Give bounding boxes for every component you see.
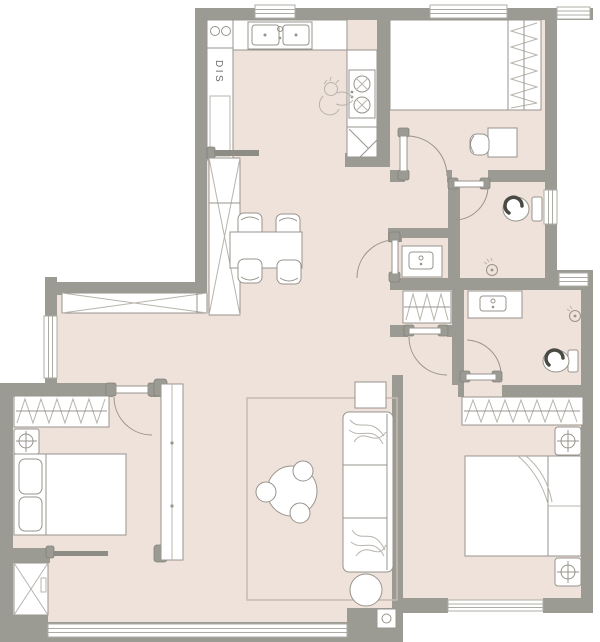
pouf	[350, 574, 382, 606]
apartment-floor-plan: DIS	[0, 0, 600, 642]
dining-chair	[238, 259, 262, 283]
dishwasher-label: DIS	[213, 60, 224, 84]
corner-unit	[347, 127, 377, 157]
stool	[290, 503, 310, 523]
nightstand	[14, 429, 39, 454]
master-bedroom-window	[448, 600, 543, 611]
storage-box	[14, 563, 48, 615]
nightstand	[555, 427, 581, 455]
master-bed	[465, 456, 581, 556]
floor-plan-canvas: DIS	[0, 0, 600, 642]
pillow	[19, 459, 42, 494]
stool	[256, 482, 276, 502]
floor-outlet	[377, 609, 396, 628]
ensuite-window	[559, 273, 588, 286]
wardrobe	[14, 396, 109, 427]
ensuite-vanity	[468, 291, 522, 318]
cooktop	[349, 70, 375, 118]
wardrobe	[508, 20, 541, 110]
top-right-corner-window	[557, 7, 590, 19]
kitchen-window	[255, 5, 295, 18]
bed	[14, 454, 126, 535]
desk-chair	[470, 134, 489, 155]
side-table	[355, 382, 386, 408]
bathroom-window	[544, 190, 557, 224]
master-wardrobe	[462, 397, 583, 425]
living-room-panorama-window	[48, 624, 347, 637]
left-wall-window	[44, 316, 57, 378]
bedroom3-window	[430, 5, 507, 18]
stool	[293, 461, 313, 481]
dining-chair	[277, 260, 301, 284]
pillow	[19, 497, 42, 531]
kitchen-sink	[248, 22, 312, 49]
nightstand	[555, 558, 581, 586]
desk	[488, 128, 517, 157]
vanity-basin	[402, 246, 442, 277]
dishwasher-cabinet: DIS	[207, 20, 233, 160]
ensuite-toilet	[543, 350, 578, 372]
sofa	[343, 412, 393, 572]
long-sideboard-cabinet	[62, 293, 207, 313]
closet-nook-wardrobe	[403, 291, 451, 323]
platform-bed	[390, 20, 508, 110]
toilet	[503, 197, 542, 221]
